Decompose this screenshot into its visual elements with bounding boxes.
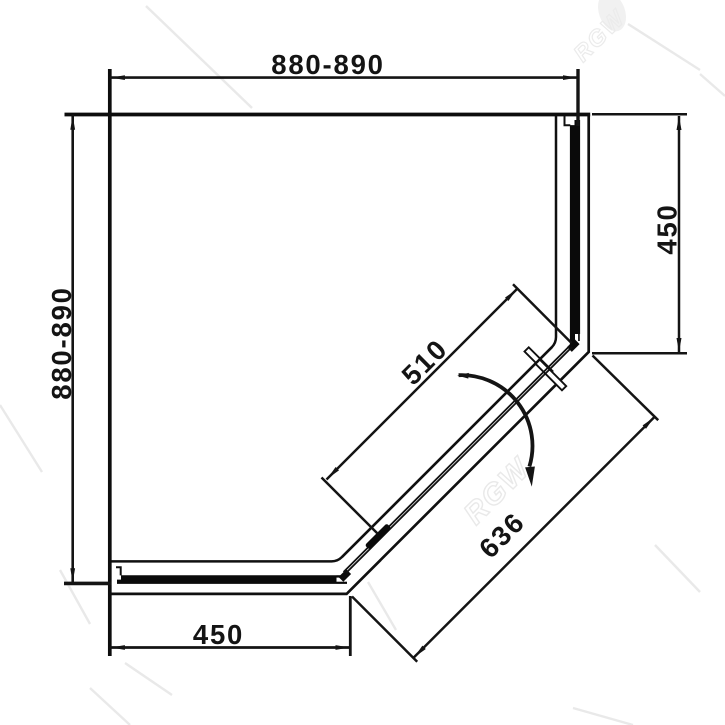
svg-text:880-890: 880-890 [46,286,77,400]
svg-text:450: 450 [193,619,244,650]
svg-text:450: 450 [652,203,683,254]
svg-text:880-890: 880-890 [271,49,385,80]
